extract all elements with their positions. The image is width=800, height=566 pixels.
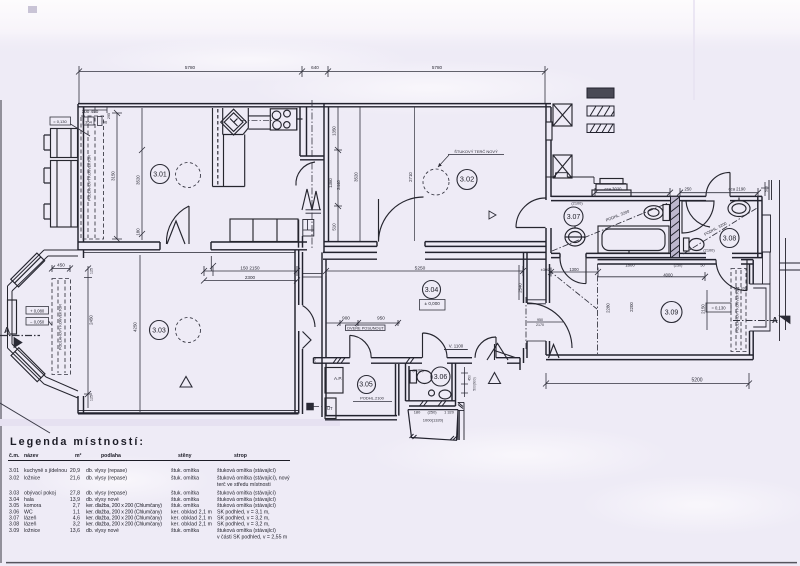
svg-text:3.03: 3.03: [152, 328, 166, 335]
svg-text:3150: 3150: [111, 171, 116, 181]
svg-text:125: 125: [90, 395, 94, 401]
svg-text:950: 950: [377, 316, 385, 321]
svg-text:5250: 5250: [415, 266, 426, 272]
svg-text:170: 170: [313, 358, 317, 364]
svg-text:(250): (250): [674, 263, 684, 267]
svg-text:kuchyně s jídelnou: kuchyně s jídelnou: [24, 468, 67, 474]
svg-text:3.04: 3.04: [425, 287, 439, 294]
svg-text:(2100): (2100): [412, 368, 424, 373]
svg-text:3.01: 3.01: [9, 468, 19, 474]
svg-text:2,7: 2,7: [73, 503, 80, 509]
svg-text:A.P.: A.P.: [334, 376, 342, 381]
svg-text:lázeň: lázeň: [24, 522, 37, 528]
svg-text:125: 125: [90, 268, 94, 274]
svg-text:295: 295: [107, 113, 111, 119]
svg-text:±300: ±300: [541, 268, 549, 272]
svg-text:štuková omítka (stávající), no: štuková omítka (stávající), nový: [217, 475, 290, 481]
svg-text:SK podhled, v = 3,2 m,: SK podhled, v = 3,2 m,: [217, 522, 270, 528]
svg-text:3.02: 3.02: [9, 475, 19, 481]
svg-text:= 0,130: = 0,130: [711, 306, 726, 311]
svg-text:5780: 5780: [185, 65, 196, 70]
svg-text:1000(1320): 1000(1320): [423, 417, 444, 422]
svg-text:250: 250: [685, 187, 693, 192]
svg-text:db. vlysy nové: db. vlysy nové: [86, 528, 119, 534]
svg-text:180: 180: [414, 410, 421, 415]
svg-text:hala: hala: [24, 497, 34, 503]
svg-text:3.03: 3.03: [9, 491, 19, 497]
svg-text:950: 950: [537, 318, 543, 322]
svg-text:podlaha: podlaha: [101, 453, 121, 459]
svg-text:db. vlysy (repase): db. vlysy (repase): [86, 475, 127, 481]
svg-text:1300: 1300: [569, 267, 579, 272]
svg-text:2440: 2440: [336, 180, 341, 190]
svg-text:5780: 5780: [432, 65, 443, 70]
svg-text:(2100): (2100): [571, 201, 583, 206]
svg-text:V. 1100: V. 1100: [449, 344, 464, 349]
svg-text:ÚT: ÚT: [327, 406, 333, 411]
svg-text:3,2: 3,2: [73, 522, 80, 528]
svg-text:štuk. omítka: štuk. omítka: [171, 475, 199, 481]
svg-text:1,1: 1,1: [73, 509, 80, 515]
svg-text:450: 450: [468, 375, 472, 381]
svg-text:(2100): (2100): [703, 248, 715, 253]
svg-text:2450: 2450: [89, 315, 94, 325]
svg-text:3.05: 3.05: [9, 503, 19, 509]
svg-text:3.05: 3.05: [359, 382, 373, 389]
svg-text:1360: 1360: [328, 178, 333, 188]
svg-text:500: 500: [765, 186, 769, 192]
svg-text:2150: 2150: [701, 304, 706, 314]
svg-text:2170: 2170: [536, 323, 544, 327]
svg-text:354: 354: [85, 119, 92, 124]
svg-text:komora: komora: [24, 503, 41, 509]
svg-text:3.06: 3.06: [9, 509, 19, 515]
svg-text:3.07: 3.07: [567, 214, 581, 221]
svg-text:cca 2190: cca 2190: [729, 187, 747, 192]
svg-text:4000: 4000: [663, 273, 673, 278]
svg-text:27,8: 27,8: [70, 491, 80, 497]
svg-text:SK podhled, v = 3,1 m,: SK podhled, v = 3,1 m,: [217, 509, 270, 515]
svg-text:SK podhled, v = 3,2 m,: SK podhled, v = 3,2 m,: [217, 516, 270, 522]
svg-text:180: 180: [136, 228, 141, 236]
svg-text:3.09: 3.09: [665, 310, 679, 317]
svg-text:3.09: 3.09: [9, 528, 19, 534]
svg-text:900: 900: [342, 316, 350, 321]
svg-text:150 2150: 150 2150: [240, 266, 260, 271]
svg-text:PODLAHOVÝ KONVEKTOR: PODLAHOVÝ KONVEKTOR: [59, 304, 63, 350]
svg-text:stěny: stěny: [178, 453, 192, 459]
svg-text:2200: 2200: [629, 302, 634, 312]
svg-text:db. vlysy (repase): db. vlysy (repase): [86, 491, 127, 497]
svg-text:č.m.: č.m.: [9, 453, 20, 459]
svg-text:20,9: 20,9: [70, 468, 80, 474]
svg-text:50: 50: [700, 263, 704, 267]
svg-text:štuková omítka (stávající): štuková omítka (stávající): [217, 468, 276, 474]
svg-text:Legenda místností:: Legenda místností:: [10, 436, 145, 448]
svg-text:3.01: 3.01: [153, 172, 167, 179]
svg-text:štuková omítka (stávající): štuková omítka (stávající): [217, 491, 276, 497]
svg-text:štuk. omítka: štuk. omítka: [171, 491, 199, 497]
svg-text:ložnice: ložnice: [24, 475, 40, 481]
svg-text:3.04: 3.04: [9, 497, 19, 503]
svg-text:PODLAHOVÝ KONVEKTOR: PODLAHOVÝ KONVEKTOR: [736, 287, 740, 333]
svg-text:− 0,050: − 0,050: [30, 320, 45, 325]
svg-text:název: název: [24, 453, 39, 459]
svg-text:PODLAHOVÝ KONVEKTOR: PODLAHOVÝ KONVEKTOR: [88, 155, 92, 201]
svg-text:v části SK podhled, v = 2,55 m: v části SK podhled, v = 2,55 m: [217, 535, 287, 541]
svg-text:4,6: 4,6: [73, 516, 80, 522]
svg-text:13,9: 13,9: [70, 497, 80, 503]
svg-text:štuk. omítka: štuk. omítka: [171, 528, 199, 534]
svg-text:1800: 1800: [625, 262, 635, 267]
svg-text:DVEŘE POSUNOUT: DVEŘE POSUNOUT: [347, 326, 384, 331]
svg-text:ložnice: ložnice: [24, 528, 40, 534]
svg-text:db. vlysy (repase): db. vlysy (repase): [86, 468, 127, 474]
svg-text:štuková omítka (stávající): štuková omítka (stávající): [217, 497, 276, 503]
svg-text:lázeň: lázeň: [24, 516, 37, 522]
svg-text:A: A: [4, 325, 10, 335]
svg-text:450: 450: [57, 263, 65, 268]
svg-text:3.06: 3.06: [434, 374, 448, 381]
svg-text:3.07: 3.07: [9, 516, 19, 522]
svg-text:1350: 1350: [332, 126, 337, 136]
svg-text:3.08: 3.08: [723, 236, 737, 243]
svg-text:2710: 2710: [408, 172, 413, 182]
svg-text:ker. dlažba, 200 x 200 (Chlumč: ker. dlažba, 200 x 200 (Chlumčany): [86, 522, 162, 528]
svg-text:300 450: 300 450: [82, 109, 99, 114]
svg-text:2540: 2540: [518, 283, 523, 293]
svg-text:db. vlysy nové: db. vlysy nové: [86, 497, 119, 503]
svg-text:3.08: 3.08: [9, 522, 19, 528]
svg-text:21,6: 21,6: [70, 475, 80, 481]
svg-text:ker. obklad 2,1 m: ker. obklad 2,1 m: [171, 516, 212, 522]
svg-text:ker. dlažba, 200 x 200 (Chlumč: ker. dlažba, 200 x 200 (Chlumčany): [86, 509, 162, 515]
svg-text:ker. obklad 2,1 m: ker. obklad 2,1 m: [171, 509, 212, 515]
svg-text:3520: 3520: [354, 172, 359, 182]
svg-text:terč ve středu místnosti: terč ve středu místnosti: [217, 482, 271, 488]
svg-text:510: 510: [332, 223, 337, 231]
svg-text:3.02: 3.02: [460, 175, 475, 184]
svg-text:ker. dlažba, 200 x 200 (Chlumč: ker. dlažba, 200 x 200 (Chlumčany): [86, 503, 162, 509]
svg-text:+ 0,080: + 0,080: [30, 309, 45, 314]
svg-text:strop: strop: [234, 453, 247, 459]
svg-text:640: 640: [311, 65, 319, 70]
svg-text:3520: 3520: [136, 175, 141, 185]
svg-text:13,6: 13,6: [70, 528, 80, 534]
svg-text:2280: 2280: [606, 303, 611, 313]
svg-text:ker. obklad 2,1 m: ker. obklad 2,1 m: [171, 522, 212, 528]
svg-text:± 0,000: ± 0,000: [425, 301, 441, 306]
svg-text:cca 3020: cca 3020: [605, 187, 623, 192]
svg-text:PODHL.2100: PODHL.2100: [360, 396, 385, 401]
svg-text:ker. dlažba, 200 x 200 (Chlumč: ker. dlažba, 200 x 200 (Chlumčany): [86, 516, 162, 522]
svg-text:štuk. omítka: štuk. omítka: [171, 497, 199, 503]
svg-text:= 0,130: = 0,130: [53, 119, 67, 124]
svg-text:ŠTUKOVÝ TERČ NOVÝ: ŠTUKOVÝ TERČ NOVÝ: [454, 149, 498, 154]
svg-text:štuková omítka (stávající): štuková omítka (stávající): [217, 528, 276, 534]
svg-text:4250: 4250: [133, 322, 138, 332]
svg-text:štuková omítka (stávající): štuková omítka (stávající): [217, 503, 276, 509]
svg-text:štuk. omítka: štuk. omítka: [171, 468, 199, 474]
svg-text:500(900): 500(900): [473, 377, 477, 391]
svg-text:A: A: [772, 316, 778, 325]
svg-text:WC: WC: [24, 509, 33, 515]
svg-text:štuk. omítka: štuk. omítka: [171, 503, 199, 509]
svg-text:m²: m²: [75, 453, 82, 459]
svg-text:obývací pokoj: obývací pokoj: [24, 491, 56, 497]
svg-text:2300: 2300: [245, 275, 256, 280]
svg-text:1 320: 1 320: [444, 410, 455, 415]
svg-text:(250): (250): [427, 410, 437, 415]
svg-text:5200: 5200: [691, 378, 702, 384]
